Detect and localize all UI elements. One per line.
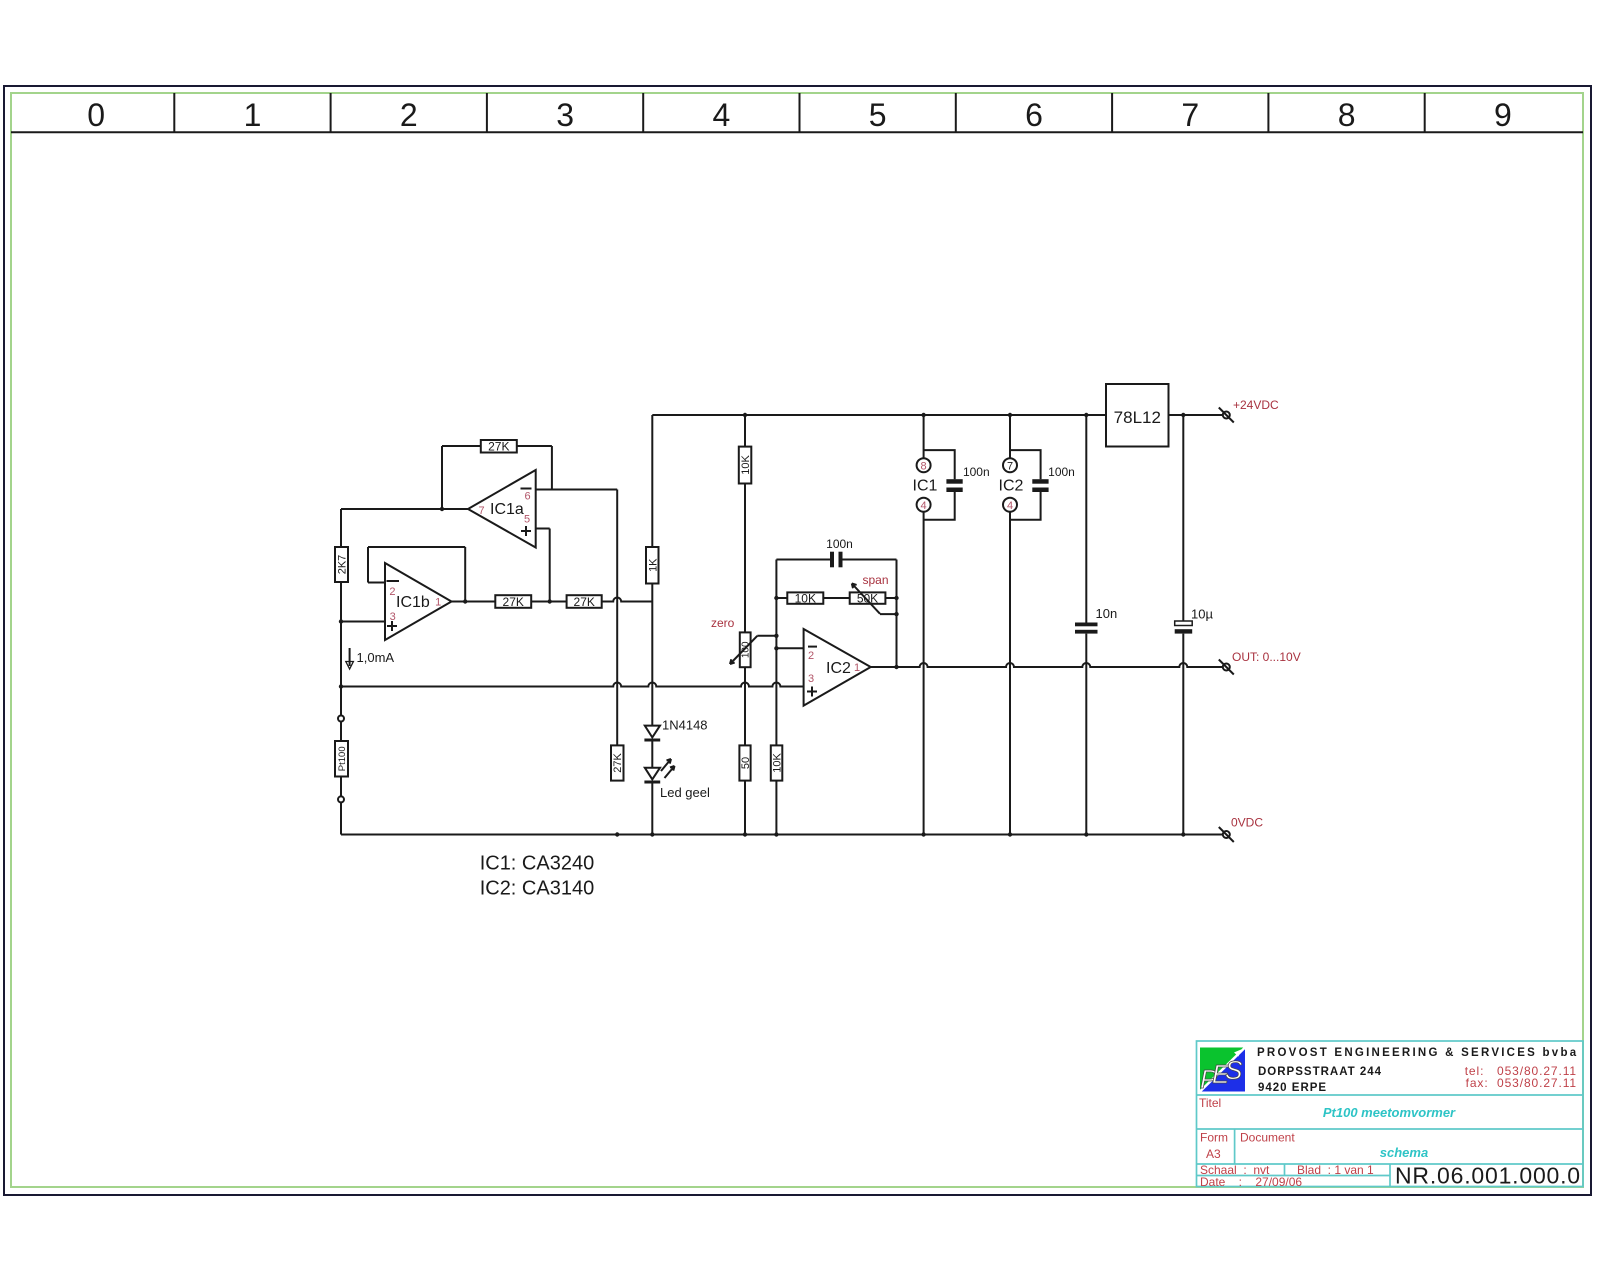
svg-text:7: 7 xyxy=(1007,461,1013,473)
svg-text:IC1: CA3240: IC1: CA3240 xyxy=(480,853,595,875)
svg-text:fax: 053/80.27.11: fax: 053/80.27.11 xyxy=(1466,1076,1577,1090)
svg-text:4: 4 xyxy=(1007,500,1013,512)
svg-text:8: 8 xyxy=(921,461,927,473)
svg-text:6: 6 xyxy=(1025,97,1043,133)
svg-text:2: 2 xyxy=(400,97,418,133)
svg-text:NR.06.001.000.0: NR.06.001.000.0 xyxy=(1395,1163,1581,1189)
svg-text:Titel: Titel xyxy=(1199,1096,1221,1110)
svg-text:4: 4 xyxy=(921,500,927,512)
svg-text:+24VDC: +24VDC xyxy=(1233,398,1279,412)
svg-text:zero: zero xyxy=(711,616,735,630)
svg-text:78L12: 78L12 xyxy=(1114,408,1161,427)
svg-text:10K: 10K xyxy=(740,455,752,475)
svg-text:1: 1 xyxy=(435,597,441,609)
svg-text:Pt100: Pt100 xyxy=(337,746,348,771)
svg-text:3: 3 xyxy=(556,97,574,133)
svg-text:1N4148: 1N4148 xyxy=(662,718,708,733)
svg-text:27K: 27K xyxy=(574,595,595,609)
svg-text:10n: 10n xyxy=(1096,606,1118,621)
svg-text:0: 0 xyxy=(87,97,105,133)
svg-text:IC1: IC1 xyxy=(913,478,938,495)
svg-text:4: 4 xyxy=(713,97,731,133)
svg-text:IC2: CA3140: IC2: CA3140 xyxy=(480,878,595,900)
svg-text:50: 50 xyxy=(740,757,752,769)
svg-text:10K: 10K xyxy=(795,592,816,606)
svg-text:1: 1 xyxy=(244,97,262,133)
svg-text:Blad : 1 van 1: Blad : 1 van 1 xyxy=(1297,1163,1374,1177)
svg-text:span: span xyxy=(863,573,889,587)
svg-text:27K: 27K xyxy=(488,440,509,454)
svg-text:Led geel: Led geel xyxy=(660,785,710,800)
svg-text:Form: Form xyxy=(1200,1131,1228,1145)
svg-text:2: 2 xyxy=(808,650,814,662)
svg-text:IC1a: IC1a xyxy=(490,501,524,518)
svg-text:27K: 27K xyxy=(503,595,524,609)
svg-text:2: 2 xyxy=(389,586,395,598)
svg-text:schema: schema xyxy=(1380,1145,1428,1160)
svg-text:27K: 27K xyxy=(612,753,624,773)
svg-text:1,0mA: 1,0mA xyxy=(357,650,395,665)
svg-text:100n: 100n xyxy=(826,537,853,551)
svg-text:S: S xyxy=(1225,1055,1243,1085)
svg-text:OUT: 0...10V: OUT: 0...10V xyxy=(1232,650,1301,664)
svg-text:1: 1 xyxy=(854,662,860,674)
svg-text:7: 7 xyxy=(1181,97,1199,133)
svg-text:A3: A3 xyxy=(1206,1147,1221,1161)
svg-text:PROVOST ENGINEERING & SERVICES: PROVOST ENGINEERING & SERVICES bvba xyxy=(1257,1047,1578,1059)
svg-text:7: 7 xyxy=(478,505,484,517)
svg-text:0VDC: 0VDC xyxy=(1231,816,1263,830)
svg-text:DORPSSTRAAT 244: DORPSSTRAAT 244 xyxy=(1258,1066,1382,1078)
svg-text:2K7: 2K7 xyxy=(337,555,349,575)
svg-text:6: 6 xyxy=(524,491,530,503)
svg-text:10K: 10K xyxy=(772,753,784,773)
svg-text:IC2: IC2 xyxy=(999,478,1024,495)
svg-text:5: 5 xyxy=(524,514,530,526)
svg-text:9420 ERPE: 9420 ERPE xyxy=(1258,1082,1327,1094)
svg-text:Pt100 meetomvormer: Pt100 meetomvormer xyxy=(1323,1105,1456,1120)
svg-text:IC1b: IC1b xyxy=(396,594,430,611)
svg-text:1K: 1K xyxy=(647,558,659,572)
svg-text:3: 3 xyxy=(808,673,814,685)
svg-text:100n: 100n xyxy=(1048,465,1075,479)
svg-text:Document: Document xyxy=(1240,1131,1295,1145)
svg-text:5: 5 xyxy=(869,97,887,133)
svg-text:8: 8 xyxy=(1338,97,1356,133)
svg-text:Date : 27/09/06: Date : 27/09/06 xyxy=(1200,1175,1302,1189)
svg-text:10µ: 10µ xyxy=(1191,607,1213,622)
svg-text:IC2: IC2 xyxy=(826,660,851,677)
svg-text:100n: 100n xyxy=(963,465,990,479)
svg-text:9: 9 xyxy=(1494,97,1512,133)
